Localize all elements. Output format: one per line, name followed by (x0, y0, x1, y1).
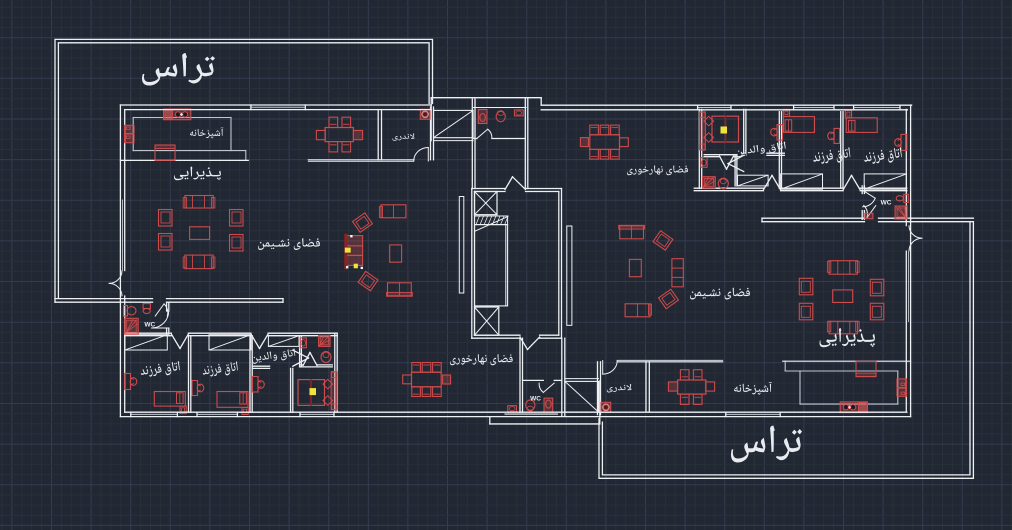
svg-text:WC: WC (144, 322, 155, 329)
svg-text:WC: WC (881, 200, 892, 207)
svg-text:WC: WC (530, 396, 541, 403)
